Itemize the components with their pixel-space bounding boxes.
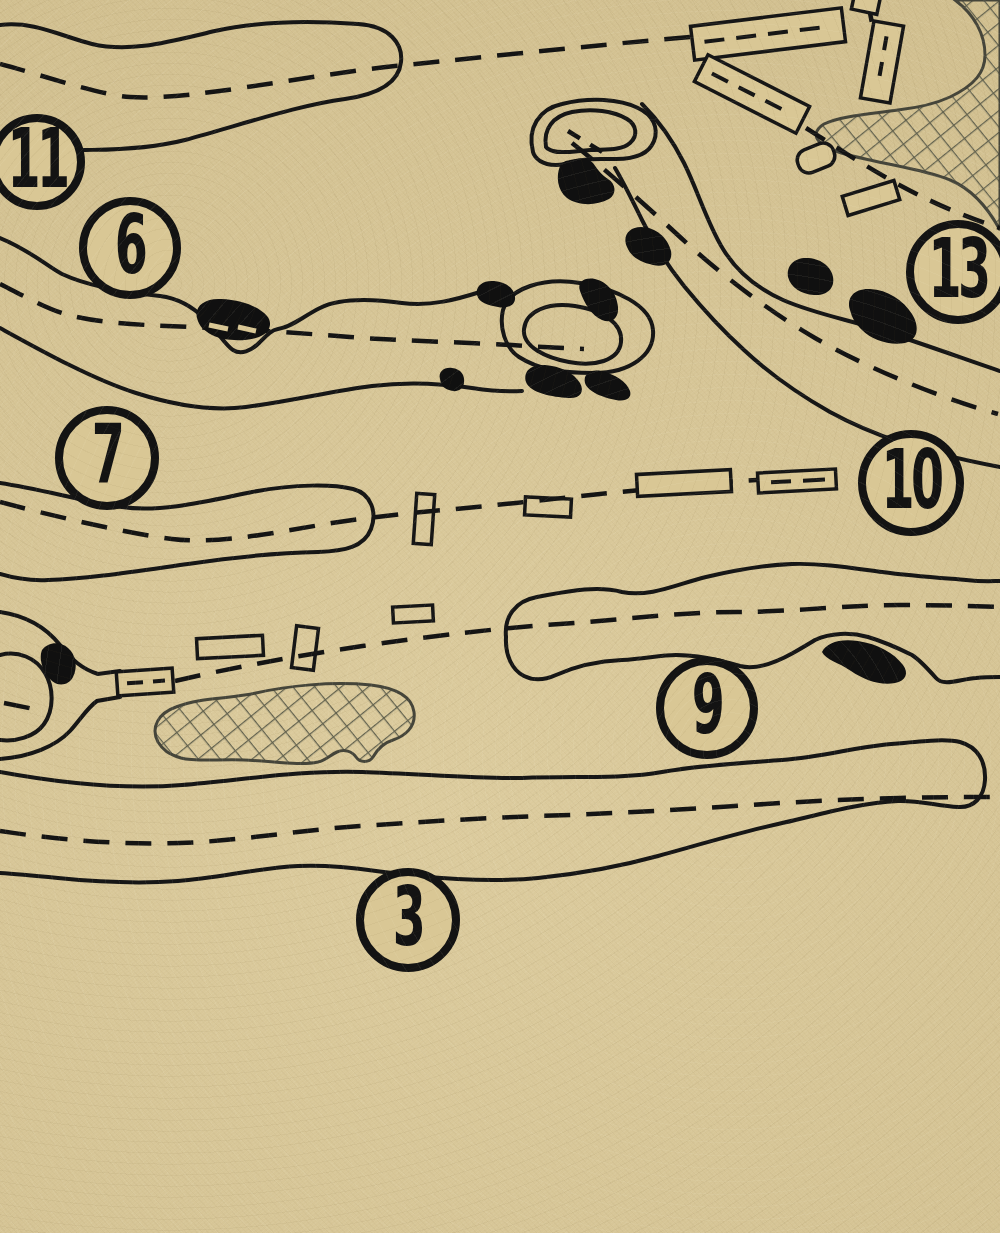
bunker-hole-6-fairway [197, 299, 271, 340]
tee-box-hole-9-a [197, 635, 264, 658]
hole-marker-9: 9 [656, 657, 758, 759]
tee-box-hole-9-left [116, 668, 174, 696]
hole-marker-10: 10 [858, 430, 964, 536]
tee-box-hole-7-vertical [413, 493, 434, 544]
course-map: 11 6 7 13 10 9 3 [0, 0, 1000, 1233]
fairway-hole-7 [0, 483, 373, 580]
bunker-green-6-top-left [477, 281, 515, 308]
tee-box-small-top-right [842, 181, 899, 216]
hole-marker-13: 13 [906, 220, 1000, 324]
hole-number: 10 [881, 439, 940, 527]
hole-number: 6 [115, 204, 145, 292]
bunker-hole-13-c [849, 289, 917, 344]
hole-number: 9 [692, 664, 722, 752]
hole-marker-3: 3 [356, 868, 460, 972]
hole-number: 7 [92, 414, 122, 502]
hole-number: 3 [393, 876, 423, 964]
bunker-green-6-top-right [579, 279, 618, 322]
bunker-hole-13-a [625, 227, 671, 266]
green-left-edge-pin-dash [4, 703, 34, 709]
tee-box-clipped-top-edge [851, 0, 882, 14]
bunker-green-6-bottom [525, 365, 582, 398]
bunker-hole-13-b [788, 258, 834, 295]
bunker-green-6-bottom-right [585, 371, 631, 401]
hole-number: 13 [928, 228, 987, 316]
tee-box-hole-10-long [636, 470, 731, 497]
fairway-hole-3 [0, 740, 985, 882]
bunker-green-13 [558, 158, 615, 204]
fairway-hole-9-upper-edge [506, 564, 1000, 637]
fairway-hole-9-lower-edge [506, 634, 1000, 682]
tee-pad-oval-top-right [794, 140, 838, 176]
hole-marker-7: 7 [55, 406, 159, 510]
course-map-drawing [0, 0, 1000, 1233]
bunker-green-6-left [440, 368, 465, 391]
waste-area-middle [155, 684, 414, 764]
tee-box-hole-9-b [292, 626, 319, 670]
centerline-hole-3 [0, 797, 1000, 843]
hole-marker-6: 6 [79, 197, 181, 299]
tee-box-hole-9-c [393, 605, 434, 623]
hole-number: 11 [7, 118, 66, 206]
